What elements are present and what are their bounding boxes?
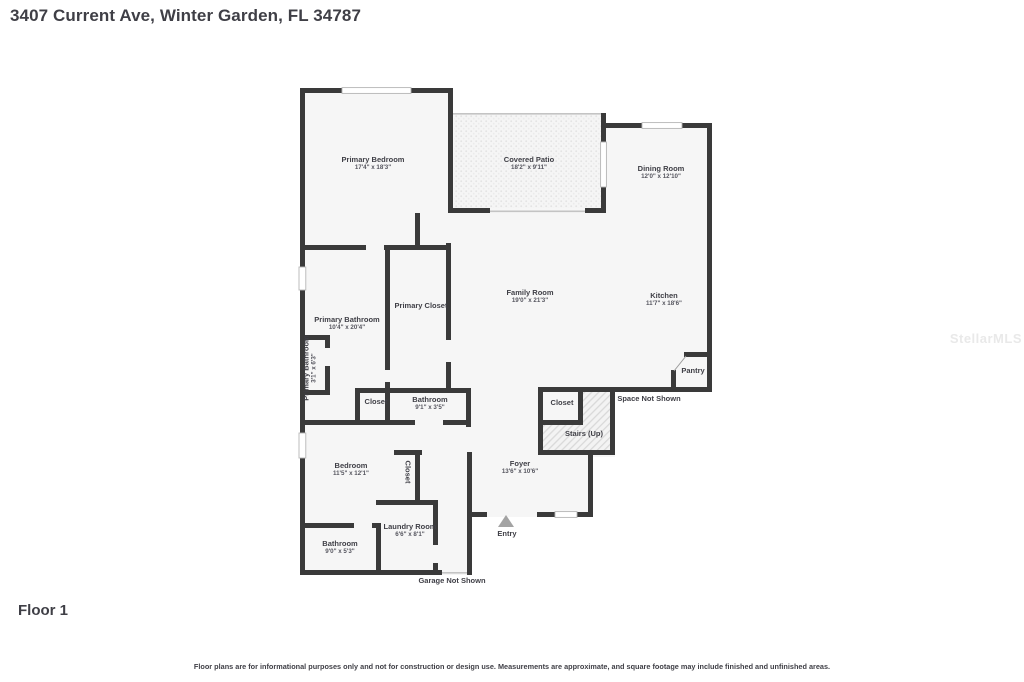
room-label-dining-room: Dining Room 12'0" x 12'10" — [638, 164, 685, 181]
room-label-laundry-room: Laundry Room 6'6" x 8'1" — [384, 522, 437, 539]
room-label-primary-bathroom: Primary Bathroom 10'4" x 20'4" — [314, 315, 379, 332]
room-label-bathroom-bottom: Bathroom 9'0" x 5'3" — [322, 539, 357, 556]
room-name: Entry — [497, 529, 516, 538]
room-name: Kitchen — [646, 291, 682, 300]
room-label-bathroom-mid: Bathroom 9'1" x 3'5" — [412, 395, 447, 412]
room-name: Bathroom — [322, 539, 357, 548]
room-name: Stairs (Up) — [565, 429, 603, 438]
room-dims: 19'0" x 21'3" — [506, 297, 553, 305]
label-garage-not-shown: Garage Not Shown — [418, 576, 485, 585]
label-entry: Entry — [497, 529, 516, 538]
room-name: Bathroom — [412, 395, 447, 404]
room-name: Garage Not Shown — [418, 576, 485, 585]
room-name: Primary Bedroom — [342, 155, 405, 164]
room-label-primary-bedroom: Primary Bedroom 17'4" x 18'3" — [342, 155, 405, 172]
room-name: Closet — [365, 397, 388, 406]
room-label-family-room: Family Room 19'0" x 21'3" — [506, 288, 553, 305]
floorplan-svg — [0, 0, 1024, 682]
room-dims: 10'4" x 20'4" — [314, 324, 379, 332]
room-name: Pantry — [681, 366, 704, 375]
room-dims: 11'7" x 18'6" — [646, 300, 682, 308]
room-dims: 11'5" x 12'1" — [333, 470, 369, 478]
room-name: Covered Patio — [504, 155, 554, 164]
room-name: Laundry Room — [384, 522, 437, 531]
room-dims: 17'4" x 18'3" — [342, 164, 405, 172]
room-label-foyer: Foyer 13'6" x 10'6" — [502, 459, 538, 476]
room-label-stairs-up: Stairs (Up) — [565, 429, 603, 438]
room-dims: 9'0" x 5'3" — [322, 548, 357, 556]
room-label-closet-bedroom: Closet — [403, 461, 412, 484]
room-name: Family Room — [506, 288, 553, 297]
room-dims: 3'1" x 6'3" — [311, 335, 319, 400]
label-space-not-shown: Space Not Shown — [617, 394, 680, 403]
room-label-closet-mid: Closet — [365, 397, 388, 406]
floor-label: Floor 1 — [18, 602, 68, 619]
room-dims: 6'6" x 8'1" — [384, 531, 437, 539]
room-label-kitchen: Kitchen 11'7" x 18'6" — [646, 291, 682, 308]
room-label-closet-stairs: Closet — [551, 398, 574, 407]
room-name: Primary Bathroom — [314, 315, 379, 324]
room-name: Space Not Shown — [617, 394, 680, 403]
room-label-covered-patio: Covered Patio 18'2" x 9'11" — [504, 155, 554, 172]
room-dims: 12'0" x 12'10" — [638, 173, 685, 181]
room-name: Dining Room — [638, 164, 685, 173]
room-label-bedroom: Bedroom 11'5" x 12'1" — [333, 461, 369, 478]
room-dims: 13'6" x 10'6" — [502, 468, 538, 476]
room-name: Closet — [551, 398, 574, 407]
room-label-primary-bathroom-small: Primary Bathroom 3'1" x 6'3" — [301, 335, 318, 400]
room-dims: 18'2" x 9'11" — [504, 164, 554, 172]
room-name: Primary Closet — [395, 301, 448, 310]
mls-watermark: StellarMLS — [950, 331, 1022, 346]
room-label-primary-closet: Primary Closet — [395, 301, 448, 310]
room-name: Bedroom — [333, 461, 369, 470]
room-name: Closet — [403, 461, 412, 484]
disclaimer-text: Floor plans are for informational purpos… — [0, 662, 1024, 671]
room-name: Primary Bathroom — [301, 335, 310, 400]
room-label-pantry: Pantry — [681, 366, 704, 375]
room-dims: 9'1" x 3'5" — [412, 404, 447, 412]
room-name: Foyer — [502, 459, 538, 468]
